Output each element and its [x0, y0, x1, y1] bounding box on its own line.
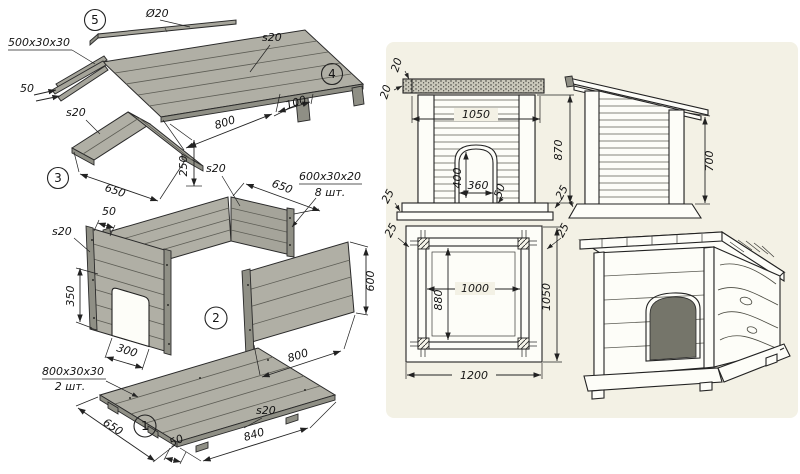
badge-3-label: 3 [54, 171, 62, 185]
part-badge-2: 2 [205, 307, 227, 329]
door-cutout [112, 288, 149, 346]
exploded-view: 5 4 3 2 1 Ø20 500x30x30 [8, 7, 377, 464]
dim-gable-height: 250 [177, 156, 190, 177]
plan-corner-post [518, 338, 529, 349]
dim-back-wall-width: 650 [270, 177, 294, 196]
dim-skid-qty: 2 шт. [55, 380, 85, 393]
part-roof-panel [52, 30, 364, 122]
dim-fv-door-width: 360 [468, 179, 489, 192]
plan-corner-post [418, 238, 429, 249]
dim-sv-wall-height: 700 [703, 151, 716, 172]
skid-foot [196, 442, 208, 452]
dim-pv-outer-depth: 1050 [540, 283, 553, 311]
roof-slab [403, 79, 544, 93]
plan-corner-post [518, 238, 529, 249]
badge-1-label: 1 [141, 419, 149, 433]
dim-batten-qty: 8 шт. [315, 186, 345, 199]
dim-door-height: 350 [64, 286, 77, 307]
roof-bracket-right [352, 86, 364, 106]
dim-floor-thickness: s20 [256, 404, 276, 417]
dim-door-width: 300 [115, 341, 139, 360]
dim-rod-diameter: Ø20 [145, 7, 169, 20]
side-right-post [669, 110, 684, 204]
part-floor [100, 348, 335, 452]
skid-foot [286, 414, 298, 424]
dim-fv-width: 1050 [462, 108, 490, 121]
dim-fv-door-height: 400 [451, 168, 464, 189]
dim-post-offset: 50 [102, 205, 116, 218]
badge-4-label: 4 [328, 67, 336, 81]
plan-corner-post [418, 338, 429, 349]
dim-pv-inner-width: 1000 [461, 282, 489, 295]
front-left-post [418, 95, 434, 203]
dim-back-wall-thickness: s20 [206, 162, 226, 175]
dim-front-wall-thickness: s20 [52, 225, 72, 238]
dim-ridge-offset: 50 [20, 82, 34, 95]
px-right-post [704, 247, 714, 368]
front-right-post [519, 95, 535, 203]
badge-2-label: 2 [212, 311, 220, 325]
base-board-bottom [397, 212, 553, 220]
dim-fv-wall-height: 870 [552, 140, 565, 161]
drawing-canvas: 5 4 3 2 1 Ø20 500x30x30 [0, 0, 800, 474]
base-board-top [402, 203, 548, 212]
side-left-post [585, 91, 599, 204]
dim-floor-length: 840 [242, 425, 266, 444]
dim-side-wall-height: 600 [364, 271, 377, 292]
dim-ridge-bar-size: 500x30x30 [8, 36, 70, 49]
dim-floor-width: 650 [101, 416, 126, 438]
dim-gable-width: 650 [103, 181, 127, 200]
px-door-opening [650, 297, 696, 360]
part-badge-3: 3 [48, 168, 69, 189]
ridge-cap-laths [52, 56, 108, 101]
corner-batten [287, 208, 294, 257]
dim-skid-size: 800x30x30 [42, 365, 104, 378]
part-badge-5: 5 [85, 10, 106, 31]
badge-5-label: 5 [91, 13, 99, 27]
dim-pv-inner-depth: 880 [432, 290, 445, 311]
part-ridge-pole [90, 20, 236, 45]
dim-roof-thickness: s20 [262, 31, 282, 44]
doghouse-blueprint: 5 4 3 2 1 Ø20 500x30x30 [0, 0, 800, 474]
px-left-post [594, 252, 604, 377]
dim-pv-outer-width: 1200 [460, 369, 488, 382]
side-base [569, 204, 701, 218]
px-foot [592, 390, 604, 399]
px-foot [700, 382, 712, 391]
dim-batten-size: 600x30x20 [299, 170, 361, 183]
dim-gable-thickness: s20 [66, 106, 86, 119]
